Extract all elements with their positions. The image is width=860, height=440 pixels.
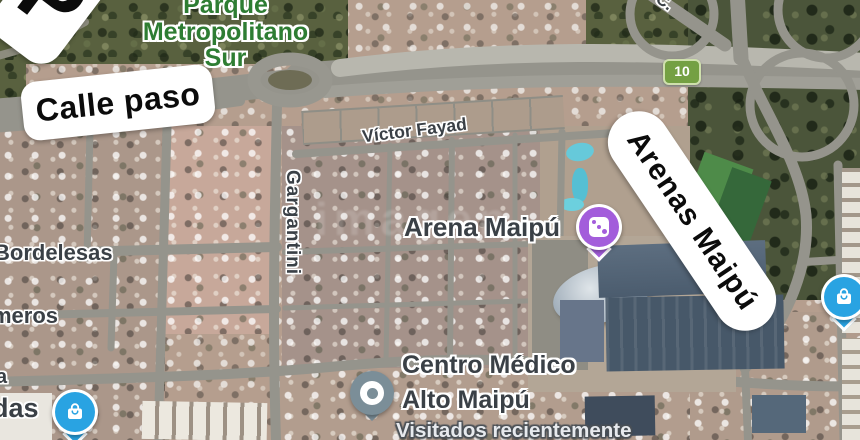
route-shield-10: 10 [663,59,701,85]
white-roof-column [842,338,860,440]
visited-dot-icon [367,388,378,399]
street-label-bordelesas: Bordelesas [0,240,113,266]
dice-icon [589,217,609,237]
shopping-bag-pin[interactable] [821,274,860,332]
poi-label-arena-maipu[interactable]: Arena Maipú [404,212,560,243]
centro-medico-line1: Centro Médico [402,351,576,380]
shopping-bag-icon [832,285,856,309]
white-roof-row [142,401,268,440]
poi-label-centro-medico[interactable]: Centro Médico Alto Maipú [402,351,576,415]
shopping-bag-icon [63,400,87,424]
visited-place-pin[interactable] [350,371,394,427]
centro-medico-status: Visitados recientemente [396,419,631,440]
map-canvas[interactable]: imagen Parque Metropolitano Sur P Calle … [0,0,860,440]
street-label-gargantini: Gargantini [281,170,303,275]
park-label-line1: Parque [118,0,333,19]
park-label[interactable]: Parque Metropolitano Sur [118,0,333,72]
casino-dice-pin[interactable] [576,204,622,264]
park-label-line3: Sur [118,45,333,72]
street-label-a-partial: a [0,366,7,389]
street-label-das: das [0,393,39,424]
park-label-line2: Metropolitano [118,19,333,46]
street-label-meros: meros [0,303,58,329]
shopping-bag-pin[interactable] [52,389,98,440]
building-roof [752,395,806,433]
centro-medico-line2: Alto Maipú [402,386,576,415]
